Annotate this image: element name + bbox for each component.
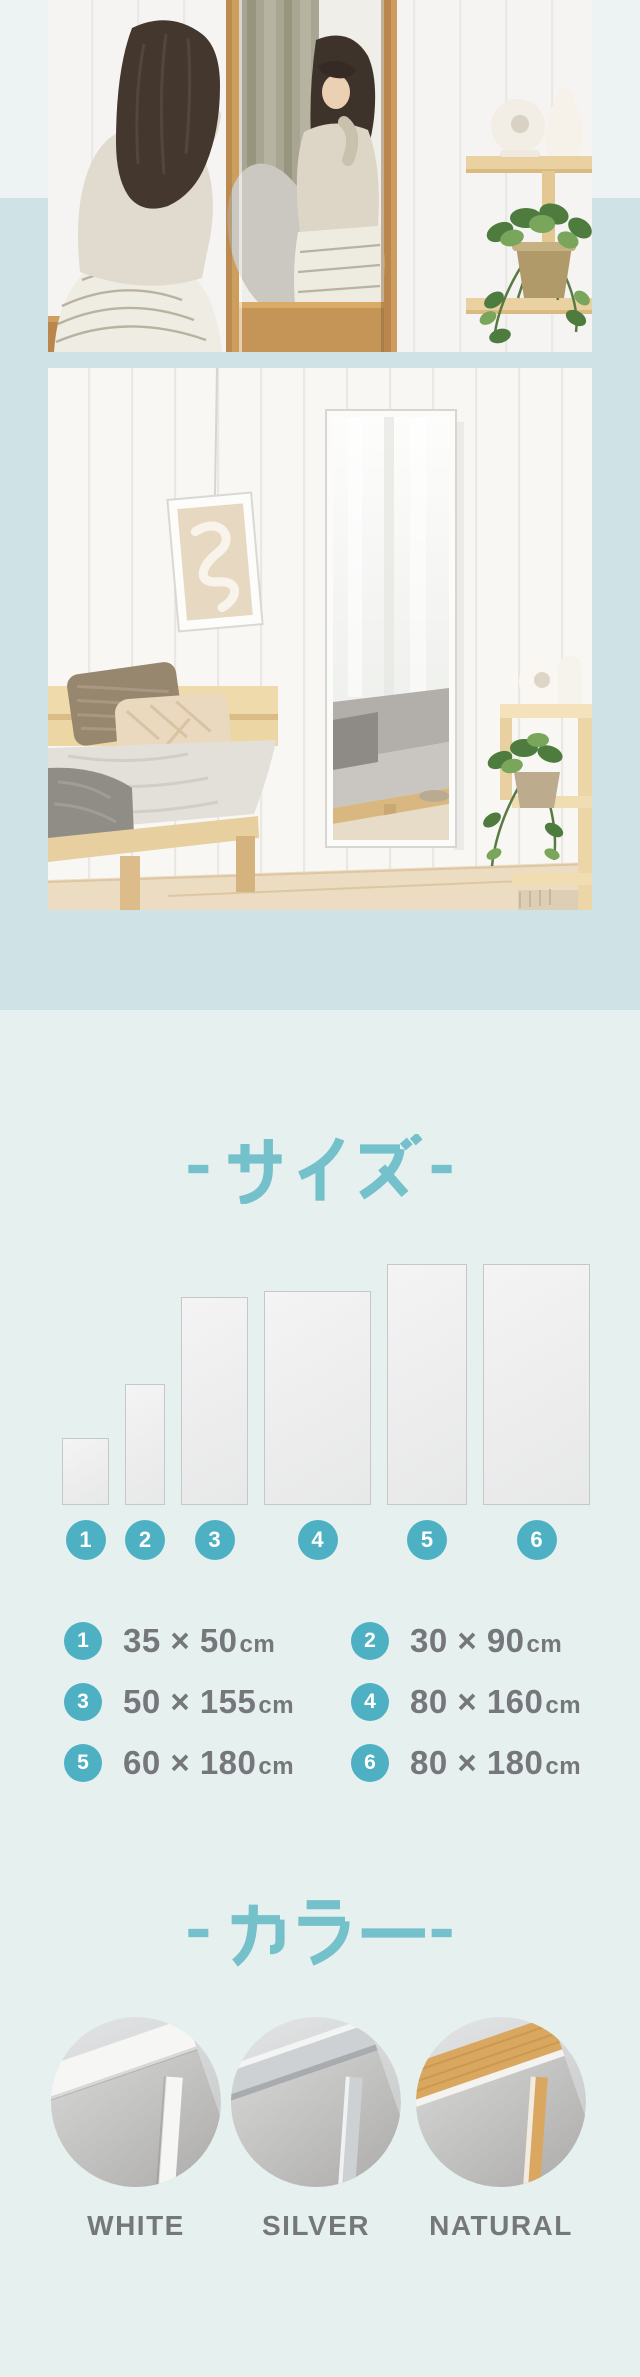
art-frame — [167, 493, 262, 632]
size-dimensions: 30 × 90cm — [410, 1622, 562, 1660]
full-length-mirror — [212, 0, 397, 352]
color-swatch-silver — [231, 2017, 401, 2187]
size-dimensions: 80 × 160cm — [410, 1683, 581, 1721]
swatch-label-natural: NATURAL — [396, 2210, 606, 2242]
mirror-size-bar — [387, 1264, 467, 1505]
badge-number: 3 — [208, 1527, 220, 1553]
hyphen-glyph — [432, 1929, 452, 1937]
size-dimensions: 35 × 50cm — [123, 1622, 275, 1660]
size-section-heading: - サイズ - — [0, 1134, 640, 1211]
size-list-item: 3 50 × 155cm — [64, 1682, 351, 1722]
room-photo-bedroom-mirror — [48, 368, 592, 910]
size-list-item: 4 80 × 160cm — [351, 1682, 581, 1722]
size-number-badge: 5 — [64, 1744, 102, 1782]
bed-leg — [236, 836, 255, 892]
size-list-item: 5 60 × 180cm — [64, 1743, 351, 1783]
swatch-label-silver: SILVER — [211, 2210, 421, 2242]
katakana-ra-glyph — [298, 1905, 345, 1962]
color-swatch-white — [51, 2017, 221, 2187]
size-unit: cm — [545, 1753, 581, 1780]
size-unit: cm — [258, 1753, 294, 1780]
badge-number: 1 — [79, 1527, 91, 1553]
badge-number: 6 — [530, 1527, 542, 1553]
size-number-badge: 2 — [351, 1622, 389, 1660]
mirror-product-page: - サイズ - 1 2 3 — [0, 0, 640, 2377]
badge-number: 2 — [139, 1527, 151, 1553]
hyphen-glyph — [188, 1929, 208, 1937]
size-unit: cm — [527, 1631, 563, 1658]
size-comparison-chart: 1 2 3 4 5 6 — [62, 1263, 590, 1560]
size-number-badge: 6 — [351, 1744, 389, 1782]
size-list-item: 2 30 × 90cm — [351, 1621, 581, 1661]
size-bar-column: 3 — [181, 1263, 248, 1560]
size-number-badge: 4 — [351, 1683, 389, 1721]
color-swatch-natural — [416, 2017, 586, 2187]
size-dimensions: 80 × 180cm — [410, 1744, 581, 1782]
badge-number: 4 — [311, 1527, 323, 1553]
bench-reflection — [239, 302, 384, 352]
size-dimensions: 60 × 180cm — [123, 1744, 294, 1782]
size-number-badge: 3 — [195, 1520, 235, 1560]
bed-leg — [120, 856, 140, 910]
mirror-size-bar — [264, 1291, 371, 1505]
bed-reflection — [333, 688, 449, 840]
arch-vase — [558, 656, 582, 704]
color-section-heading: - カラー - — [0, 1898, 640, 1975]
size-list-item: 1 35 × 50cm — [64, 1621, 351, 1661]
mirror-size-bar — [483, 1264, 590, 1505]
badge-number: 5 — [421, 1527, 433, 1553]
katakana-ka-glyph — [232, 1905, 280, 1963]
size-number-badge: 2 — [125, 1520, 165, 1560]
lifestyle-photo-woman-mirror — [48, 0, 592, 352]
hyphen-glyph — [432, 1165, 452, 1173]
mirror-size-bar — [125, 1384, 165, 1505]
size-list: 1 35 × 50cm 2 30 × 90cm 3 50 × 155cm 4 8… — [64, 1621, 581, 1783]
size-unit: cm — [240, 1631, 276, 1658]
size-heading-glyphs — [175, 1134, 465, 1204]
swatch-label-white: WHITE — [31, 2210, 241, 2242]
mirror-size-bar — [181, 1297, 248, 1505]
size-list-item: 6 80 × 180cm — [351, 1743, 581, 1783]
size-number-badge: 1 — [66, 1520, 106, 1560]
hyphen-glyph — [188, 1165, 208, 1173]
size-unit: cm — [545, 1692, 581, 1719]
size-unit: cm — [258, 1692, 294, 1719]
size-bar-column: 4 — [264, 1263, 371, 1560]
katakana-sa-glyph — [228, 1139, 281, 1201]
size-bar-column: 2 — [125, 1263, 165, 1560]
size-number-badge: 5 — [407, 1520, 447, 1560]
katakana-i-glyph — [300, 1139, 340, 1201]
size-number-badge: 4 — [298, 1520, 338, 1560]
wall-mirror — [326, 410, 464, 850]
size-bar-column: 5 — [387, 1263, 467, 1560]
size-number-badge: 3 — [64, 1683, 102, 1721]
size-number-badge: 1 — [64, 1622, 102, 1660]
katakana-zu-glyph — [360, 1136, 419, 1196]
size-bar-column: 6 — [483, 1263, 590, 1560]
mirror-size-bar — [62, 1438, 109, 1505]
size-dimensions: 50 × 155cm — [123, 1683, 294, 1721]
size-number-badge: 6 — [517, 1520, 557, 1560]
size-bar-column: 1 — [62, 1263, 109, 1560]
color-heading-glyphs — [175, 1898, 465, 1968]
